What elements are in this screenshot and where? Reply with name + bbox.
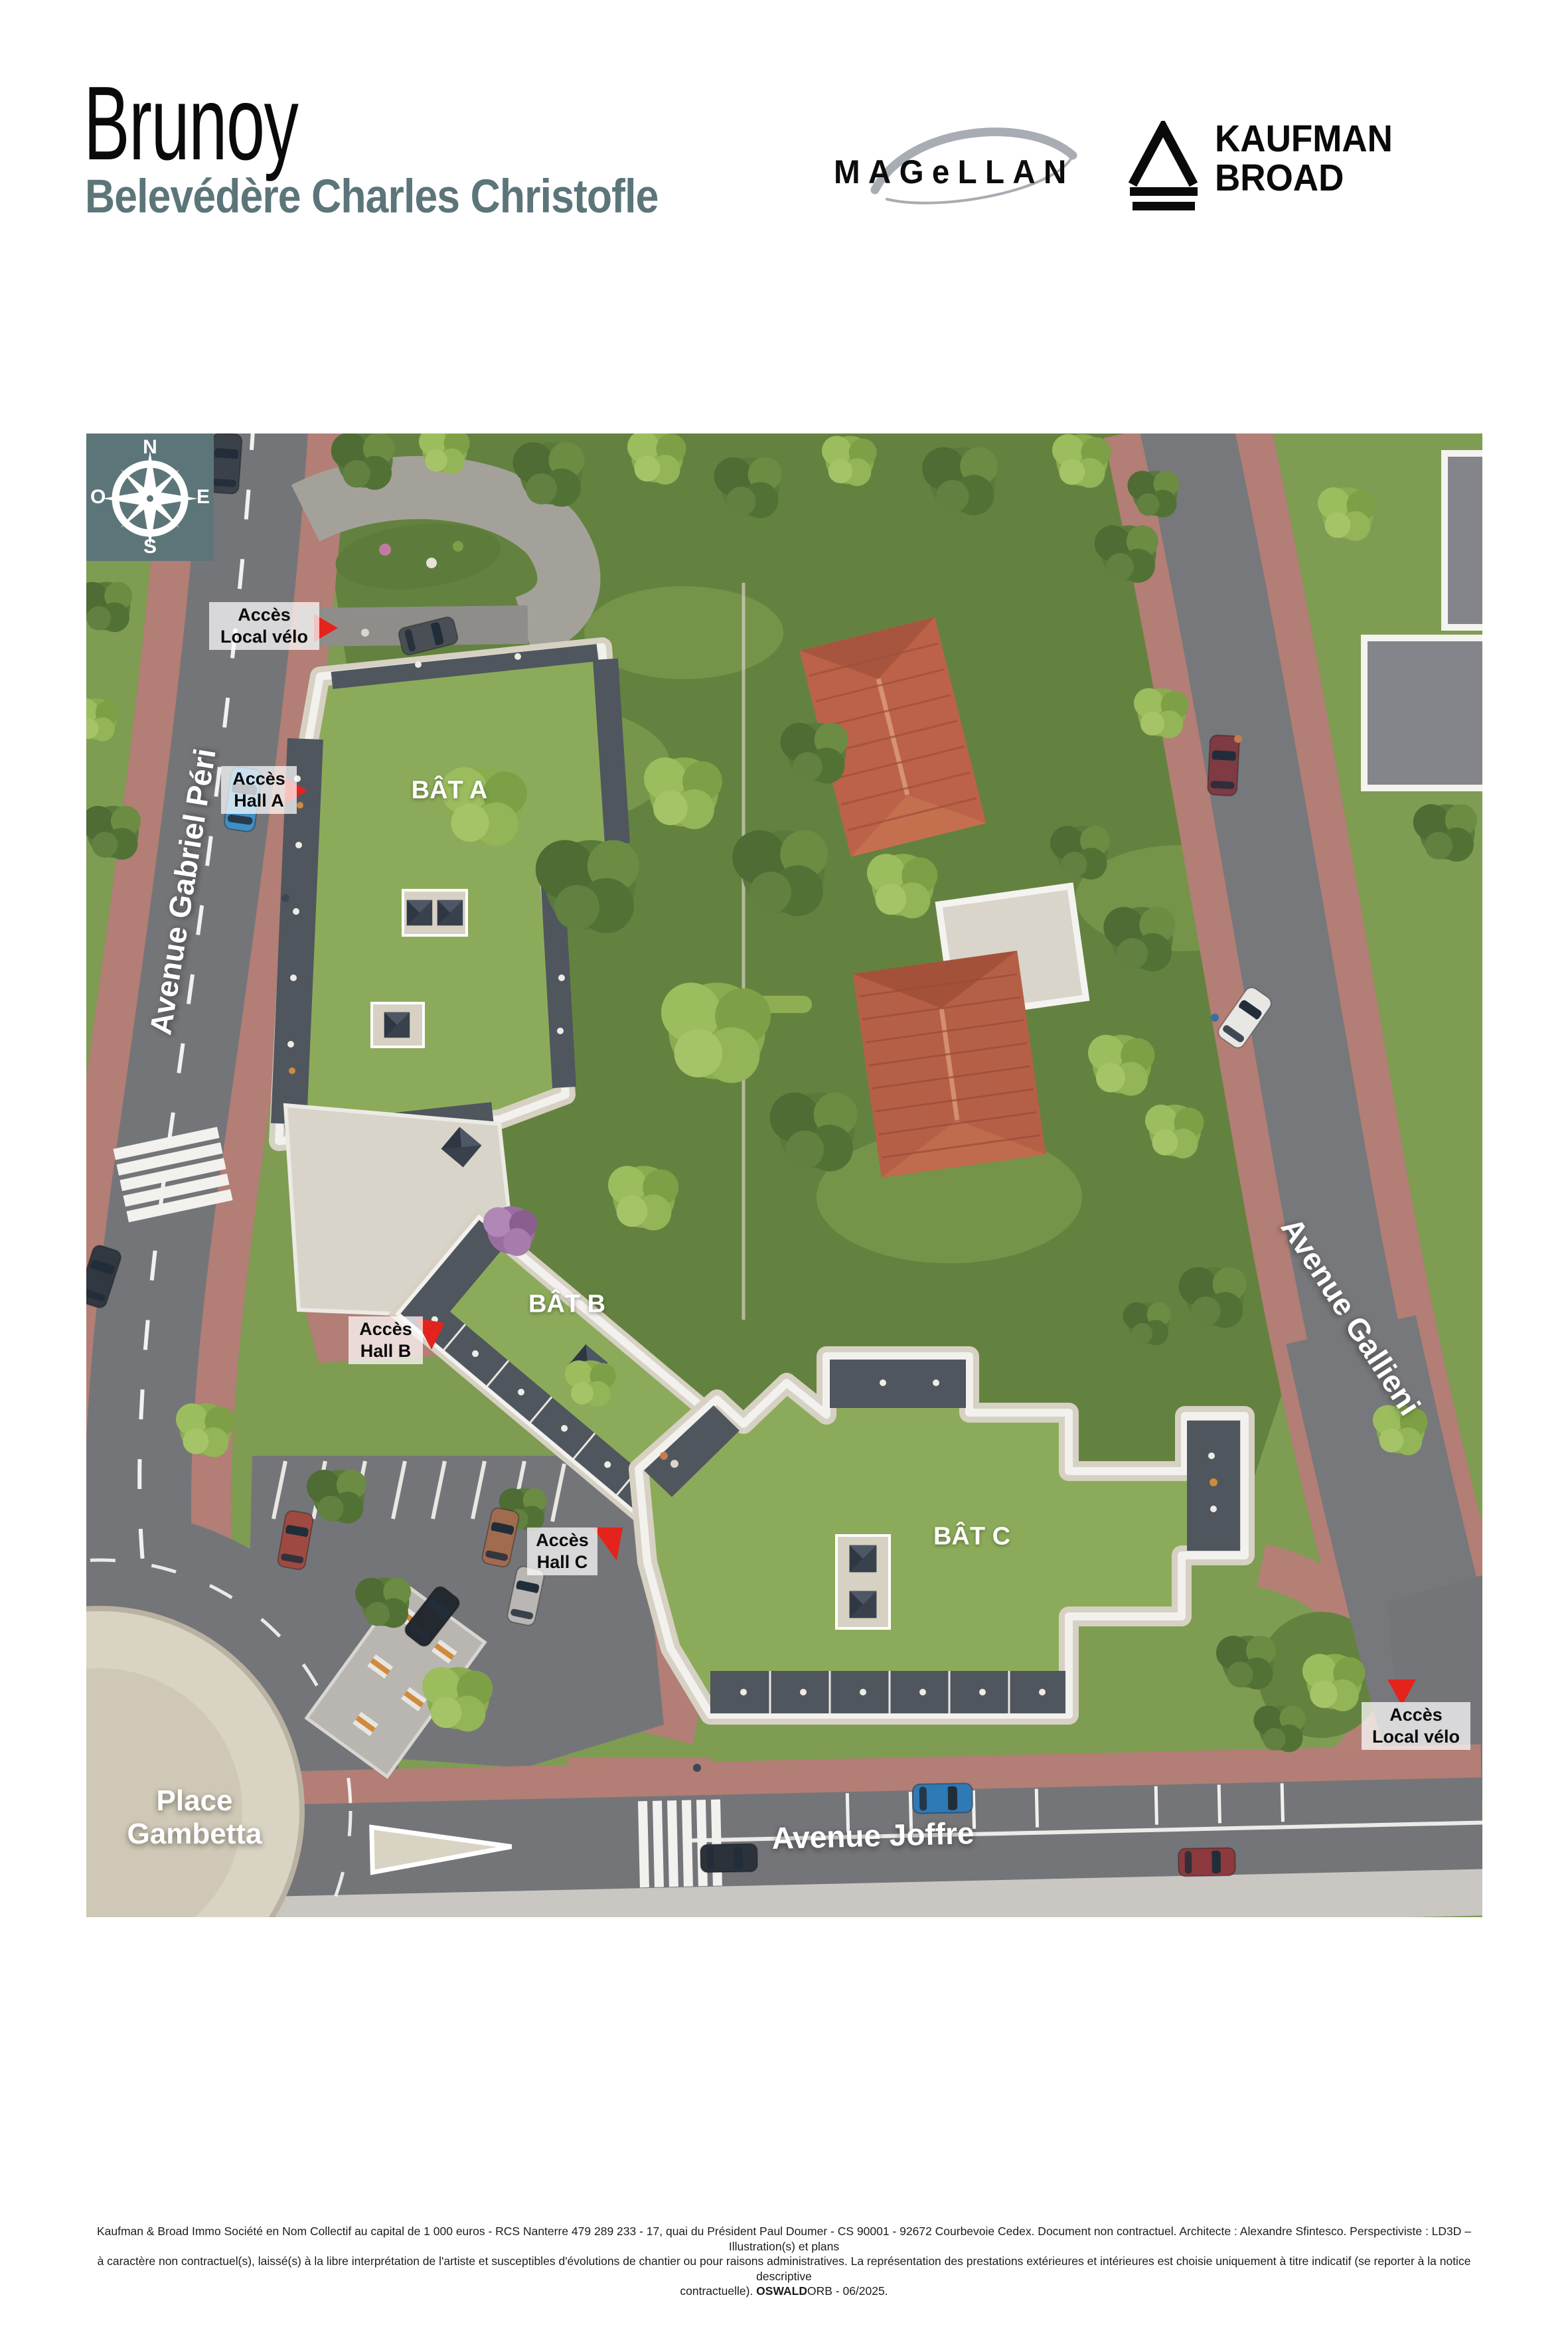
label-bat-b: BÂT B [528, 1291, 605, 1319]
tag-hall-a: Accès Hall A [221, 766, 297, 814]
label-avenue-joffre: Avenue Joffre [771, 1815, 975, 1856]
page-title: Brunoy [84, 64, 297, 184]
site-plan-illustration [86, 433, 1482, 1917]
tag-hall-b: Accès Hall B [349, 1316, 423, 1364]
site-plan: N E S O Accès Local vélo Accès Hall A Ac… [86, 433, 1482, 1917]
kaufman-broad-wordmark: KAUFMAN BROAD [1215, 119, 1393, 198]
brochure-page: Brunoy Belevédère Charles Christofle MAG… [0, 0, 1568, 2352]
kaufman-broad-logo: KAUFMAN BROAD [1125, 118, 1483, 218]
legal-line-3: contractuelle). OSWALDORB - 06/2025. [86, 2284, 1482, 2299]
label-bat-a: BÂT A [412, 777, 488, 805]
tag-local-velo-right: Accès Local vélo [1362, 1702, 1470, 1750]
magellan-logo: MAGeLLAN [828, 112, 1114, 211]
page-subtitle: Belevédère Charles Christofle [85, 170, 658, 224]
oswald-credit: OSWALD [756, 2284, 807, 2298]
compass-north-label: N [143, 436, 157, 459]
magellan-wordmark: MAGeLLAN [834, 153, 1075, 191]
existing-house-2 [853, 951, 1046, 1178]
label-place-gambetta: Place Gambetta [127, 1784, 262, 1851]
kaufman-broad-triangle-icon [1125, 121, 1204, 214]
tag-local-velo-top: Accès Local vélo [209, 602, 319, 650]
label-bat-c: BÂT C [933, 1523, 1010, 1551]
compass-south-label: S [143, 536, 157, 558]
compass-east-label: E [196, 486, 210, 509]
legal-line-1: Kaufman & Broad Immo Société en Nom Coll… [86, 2224, 1482, 2254]
legal-line-2: à caractère non contractuel(s), laissé(s… [86, 2254, 1482, 2284]
legal-footer: Kaufman & Broad Immo Société en Nom Coll… [86, 2224, 1482, 2299]
compass-west-label: O [90, 486, 106, 509]
compass-rose: N E S O [86, 433, 214, 561]
tag-hall-c: Accès Hall C [527, 1528, 597, 1575]
